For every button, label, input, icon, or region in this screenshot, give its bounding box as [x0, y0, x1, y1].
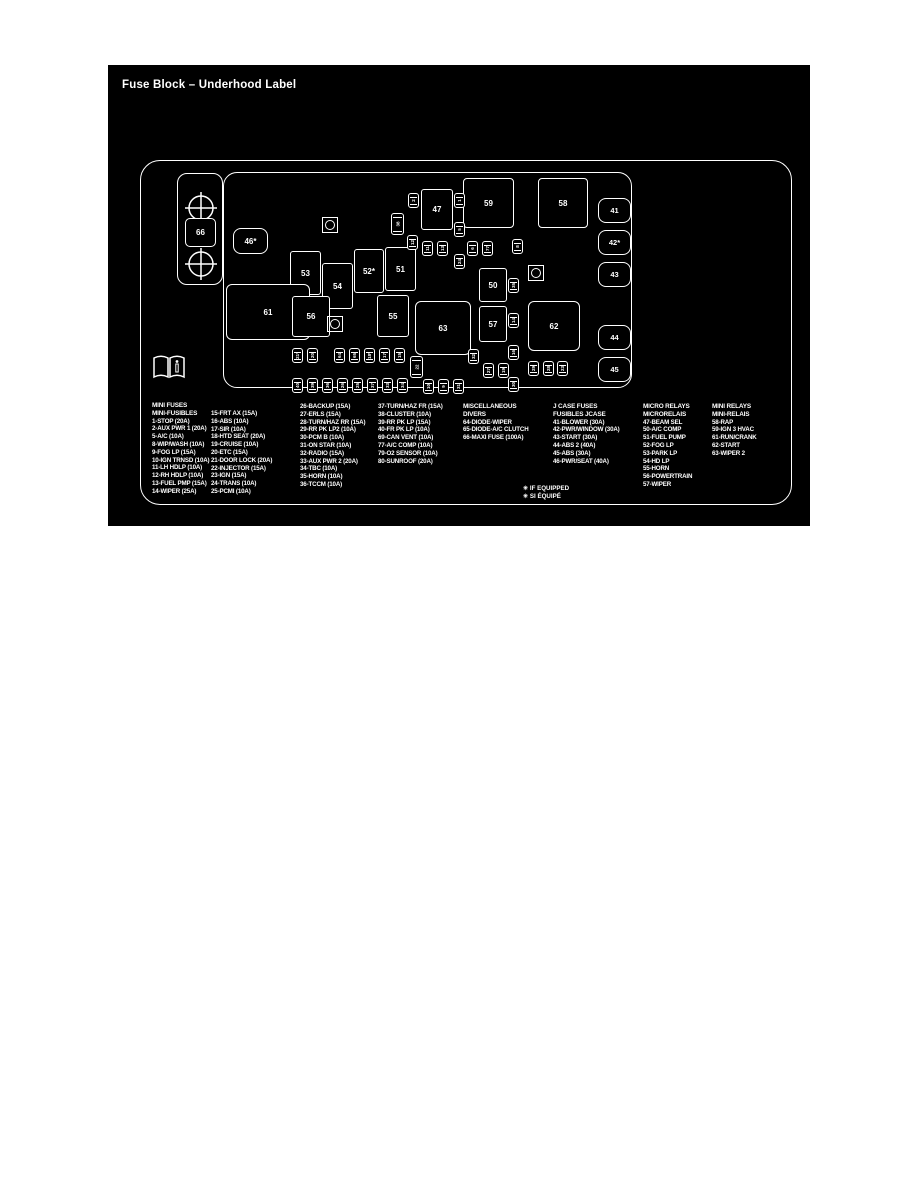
legend-item: 62-START [712, 442, 757, 450]
legend-item: 22-INJECTOR (15A) [211, 465, 272, 473]
legend-item: 51-FUEL PUMP [643, 434, 692, 442]
mini-fuse-33: 33 [382, 378, 393, 393]
mini-fuse-27: 27 [483, 363, 494, 378]
legend-header: DIVERS [463, 411, 529, 419]
mini-fuse-29: 29 [528, 361, 539, 376]
legend-item: 45-ABS (30A) [553, 450, 620, 458]
mini-fuse-11: 11 [422, 241, 433, 256]
relay-box-46: 46* [233, 228, 268, 254]
legend-item: 11-LH HDLP (10A) [152, 464, 209, 472]
mini-fuse-34: 34 [397, 378, 408, 393]
legend-item: 28-TURN/HAZ RR (15A) [300, 419, 365, 427]
legend-item: 57-WIPER [643, 481, 692, 489]
consult-manual-book-icon [152, 353, 186, 381]
footnote-if-equipped: ✳ IF EQUIPPED [523, 485, 569, 493]
mini-fuse-1: 1 [454, 193, 465, 208]
legend-item: 50-A/C COMP [643, 426, 692, 434]
legend-item: 35-HORN (10A) [300, 473, 365, 481]
legend-item: 32-RADIO (15A) [300, 450, 365, 458]
relay-box-59: 59 [463, 178, 514, 228]
legend-header: MINI RELAYS [712, 403, 757, 411]
legend-header: MICRO RELAYS [643, 403, 692, 411]
legend-column-1: MINI FUSESMINI-FUSIBLES1-STOP (20A)2-AUX… [152, 402, 209, 496]
legend-item: 42-PWR/WINDOW (30A) [553, 426, 620, 434]
legend-item: 38-CLUSTER (10A) [378, 411, 443, 419]
mini-fuse-25: 25 [352, 378, 363, 393]
legend-item: 44-ABS 2 (40A) [553, 442, 620, 450]
relay-box-58: 58 [538, 178, 588, 228]
footnotes: ✳ IF EQUIPPED ✳ SI ÉQUIPÉ [523, 485, 569, 501]
fuse-block-label-panel: Fuse Block – Underhood Label 66 46*53545… [108, 65, 810, 526]
legend-column-3: 26-BACKUP (15A)27-ERLS (15A)28-TURN/HAZ … [300, 403, 365, 489]
legend-item: 13-FUEL PMP (15A) [152, 480, 209, 488]
legend-item: 18-HTD SEAT (20A) [211, 433, 272, 441]
mini-fuse-2: 2 [408, 193, 419, 208]
relay-box-55: 55 [377, 295, 409, 337]
legend-item: 55-HORN [643, 465, 692, 473]
legend-header: MISCELLANEOUS [463, 403, 529, 411]
legend-item: 59-IGN 3 HVAC [712, 426, 757, 434]
legend-item: 52-FOG LP [643, 442, 692, 450]
relay-box-62: 62 [528, 301, 580, 351]
legend-item: 16-ABS (10A) [211, 418, 272, 426]
mini-fuse-77: 77 [482, 241, 493, 256]
legend-column-8: MINI RELAYSMINI-RELAIS58-RAP59-IGN 3 HVA… [712, 403, 757, 458]
legend-item: 8-WIP/WASH (10A) [152, 441, 209, 449]
legend-header: FUSIBLES JCASE [553, 411, 620, 419]
legend-header: J CASE FUSES [553, 403, 620, 411]
mini-fuse-36: 36 [322, 378, 333, 393]
legend-item: 29-RR PK LP2 (10A) [300, 426, 365, 434]
mini-fuse-14: 14 [508, 313, 519, 328]
legend-column-4: 37-TURN/HAZ FR (15A)38-CLUSTER (10A)39-R… [378, 403, 443, 465]
test-point-icon [322, 217, 338, 233]
mini-fuse-13: 13 [437, 241, 448, 256]
legend-column-7: MICRO RELAYSMICRORELAIS47-BEAM SEL50-A/C… [643, 403, 692, 489]
mini-fuse-19: 19 [498, 363, 509, 378]
legend-item: 10-IGN TRNSD (10A) [152, 457, 209, 465]
mini-fuse-5: 5 [454, 222, 465, 237]
mini-fuse-65: 65 [349, 348, 360, 363]
mini-fuse-35: 35 [508, 278, 519, 293]
legend-item: 41-BLOWER (30A) [553, 419, 620, 427]
legend-header: MINI FUSES [152, 402, 209, 410]
mini-fuse-16: 16 [508, 345, 519, 360]
legend-item: 47-BEAM SEL [643, 419, 692, 427]
jcase-fuse-41: 41 [598, 198, 631, 223]
relay-box-52: 52* [354, 249, 384, 293]
mini-fuse-30: 30 [508, 377, 519, 392]
maxi-fuse-66: 66 [185, 218, 216, 247]
legend-item: 56-POWERTRAIN [643, 473, 692, 481]
page-title: Fuse Block – Underhood Label [122, 79, 296, 91]
legend-item: 30-PCM B (10A) [300, 434, 365, 442]
legend-item: 26-BACKUP (15A) [300, 403, 365, 411]
legend-item: 9-FOG LP (15A) [152, 449, 209, 457]
legend-item: 2-AUX PWR 1 (20A) [152, 425, 209, 433]
relay-box-63: 63 [415, 301, 471, 355]
legend-item: 37-TURN/HAZ FR (15A) [378, 403, 443, 411]
legend-item: 53-PARK LP [643, 450, 692, 458]
legend-item: 79-O2 SENSOR (10A) [378, 450, 443, 458]
legend-item: 1-STOP (20A) [152, 418, 209, 426]
legend-item: 54-HD LP [643, 458, 692, 466]
legend-item: 24-TRANS (10A) [211, 480, 272, 488]
legend-item: 58-RAP [712, 419, 757, 427]
legend-item: 15-FRT AX (15A) [211, 410, 272, 418]
relay-box-47: 47 [421, 189, 453, 230]
mini-fuse-10: 10 [423, 379, 434, 394]
mini-fuse-22: 22 [410, 356, 423, 378]
mini-fuse-18: 18* [364, 348, 375, 363]
footnote-si-equipe: ✳ SI ÉQUIPÉ [523, 493, 569, 501]
relay-box-56: 56 [292, 296, 330, 337]
legend-item: 34-TBC (10A) [300, 465, 365, 473]
test-point-icon [528, 265, 544, 281]
mini-fuse-24: 24 [454, 254, 465, 269]
mini-fuse-17: 17 [379, 348, 390, 363]
mini-fuse-37: 37 [367, 378, 378, 393]
relay-box-50: 50 [479, 268, 507, 302]
jcase-fuse-45: 45 [598, 357, 631, 382]
mini-fuse-8: 8 [512, 239, 523, 254]
mini-fuse-9: 9 [438, 379, 449, 394]
mini-fuse-15: 15 [394, 348, 405, 363]
legend-item: 39-RR PK LP (15A) [378, 419, 443, 427]
mini-fuse-38: 38 [391, 213, 404, 235]
legend-column-2: 15-FRT AX (15A)16-ABS (10A)17-SIR (10A)1… [211, 410, 272, 496]
mini-fuse-26: 26 [337, 378, 348, 393]
legend-item: 33-AUX PWR 2 (20A) [300, 458, 365, 466]
legend-item: 25-PCMI (10A) [211, 488, 272, 496]
legend-column-6: J CASE FUSESFUSIBLES JCASE41-BLOWER (30A… [553, 403, 620, 465]
mini-fuse-28: 28 [543, 361, 554, 376]
jcase-fuse-43: 43 [598, 262, 631, 287]
legend-item: 5-A/C (10A) [152, 433, 209, 441]
legend-item: 14-WIPER (25A) [152, 488, 209, 496]
legend-item: 40-FR PK LP (10A) [378, 426, 443, 434]
legend-item: 36-TCCM (10A) [300, 481, 365, 489]
mini-fuse-39: 39 [307, 378, 318, 393]
mini-fuse-23: 23 [557, 361, 568, 376]
relay-box-57: 57 [479, 306, 507, 342]
mini-fuse-12: 12 [407, 235, 418, 250]
legend-item: 61-RUN/CRANK [712, 434, 757, 442]
mini-fuse-31: 31 [453, 379, 464, 394]
legend-item: 65-DIODE-A/C CLUTCH [463, 426, 529, 434]
jcase-fuse-44: 44 [598, 325, 631, 350]
legend-item: 23-IGN (15A) [211, 472, 272, 480]
mini-fuse-64: 64 [334, 348, 345, 363]
mini-fuse-40: 40 [292, 378, 303, 393]
legend-item: 43-START (30A) [553, 434, 620, 442]
legend-header: MICRORELAIS [643, 411, 692, 419]
legend-column-5: MISCELLANEOUSDIVERS64-DIODE-WIPER65-DIOD… [463, 403, 529, 442]
legend-item: 17-SIR (10A) [211, 426, 272, 434]
mini-fuse-32: 32 [468, 349, 479, 364]
legend-item: 12-RH HDLP (10A) [152, 472, 209, 480]
legend-item: 46-PWR/SEAT (40A) [553, 458, 620, 466]
legend-item: 31-ON STAR (10A) [300, 442, 365, 450]
legend-item: 80-SUNROOF (20A) [378, 458, 443, 466]
jcase-fuse-42: 42* [598, 230, 631, 255]
legend-item: 21-DOOR LOCK (20A) [211, 457, 272, 465]
legend-item: 69-CAN VENT (10A) [378, 434, 443, 442]
legend-header: MINI-FUSIBLES [152, 410, 209, 418]
legend-item: 20-ETC (15A) [211, 449, 272, 457]
legend-item: 66-MAXI FUSE (100A) [463, 434, 529, 442]
mini-fuse-21: 21* [292, 348, 303, 363]
legend-item: 64-DIODE-WIPER [463, 419, 529, 427]
relay-box-51: 51 [385, 247, 416, 291]
legend-item: 19-CRUISE (10A) [211, 441, 272, 449]
mini-fuse-20: 20 [307, 348, 318, 363]
mini-fuse-6: 6 [467, 241, 478, 256]
legend-header: MINI-RELAIS [712, 411, 757, 419]
legend-item: 27-ERLS (15A) [300, 411, 365, 419]
test-point-icon [327, 316, 343, 332]
legend-item: 77-A/C COMP (10A) [378, 442, 443, 450]
legend-item: 63-WIPER 2 [712, 450, 757, 458]
